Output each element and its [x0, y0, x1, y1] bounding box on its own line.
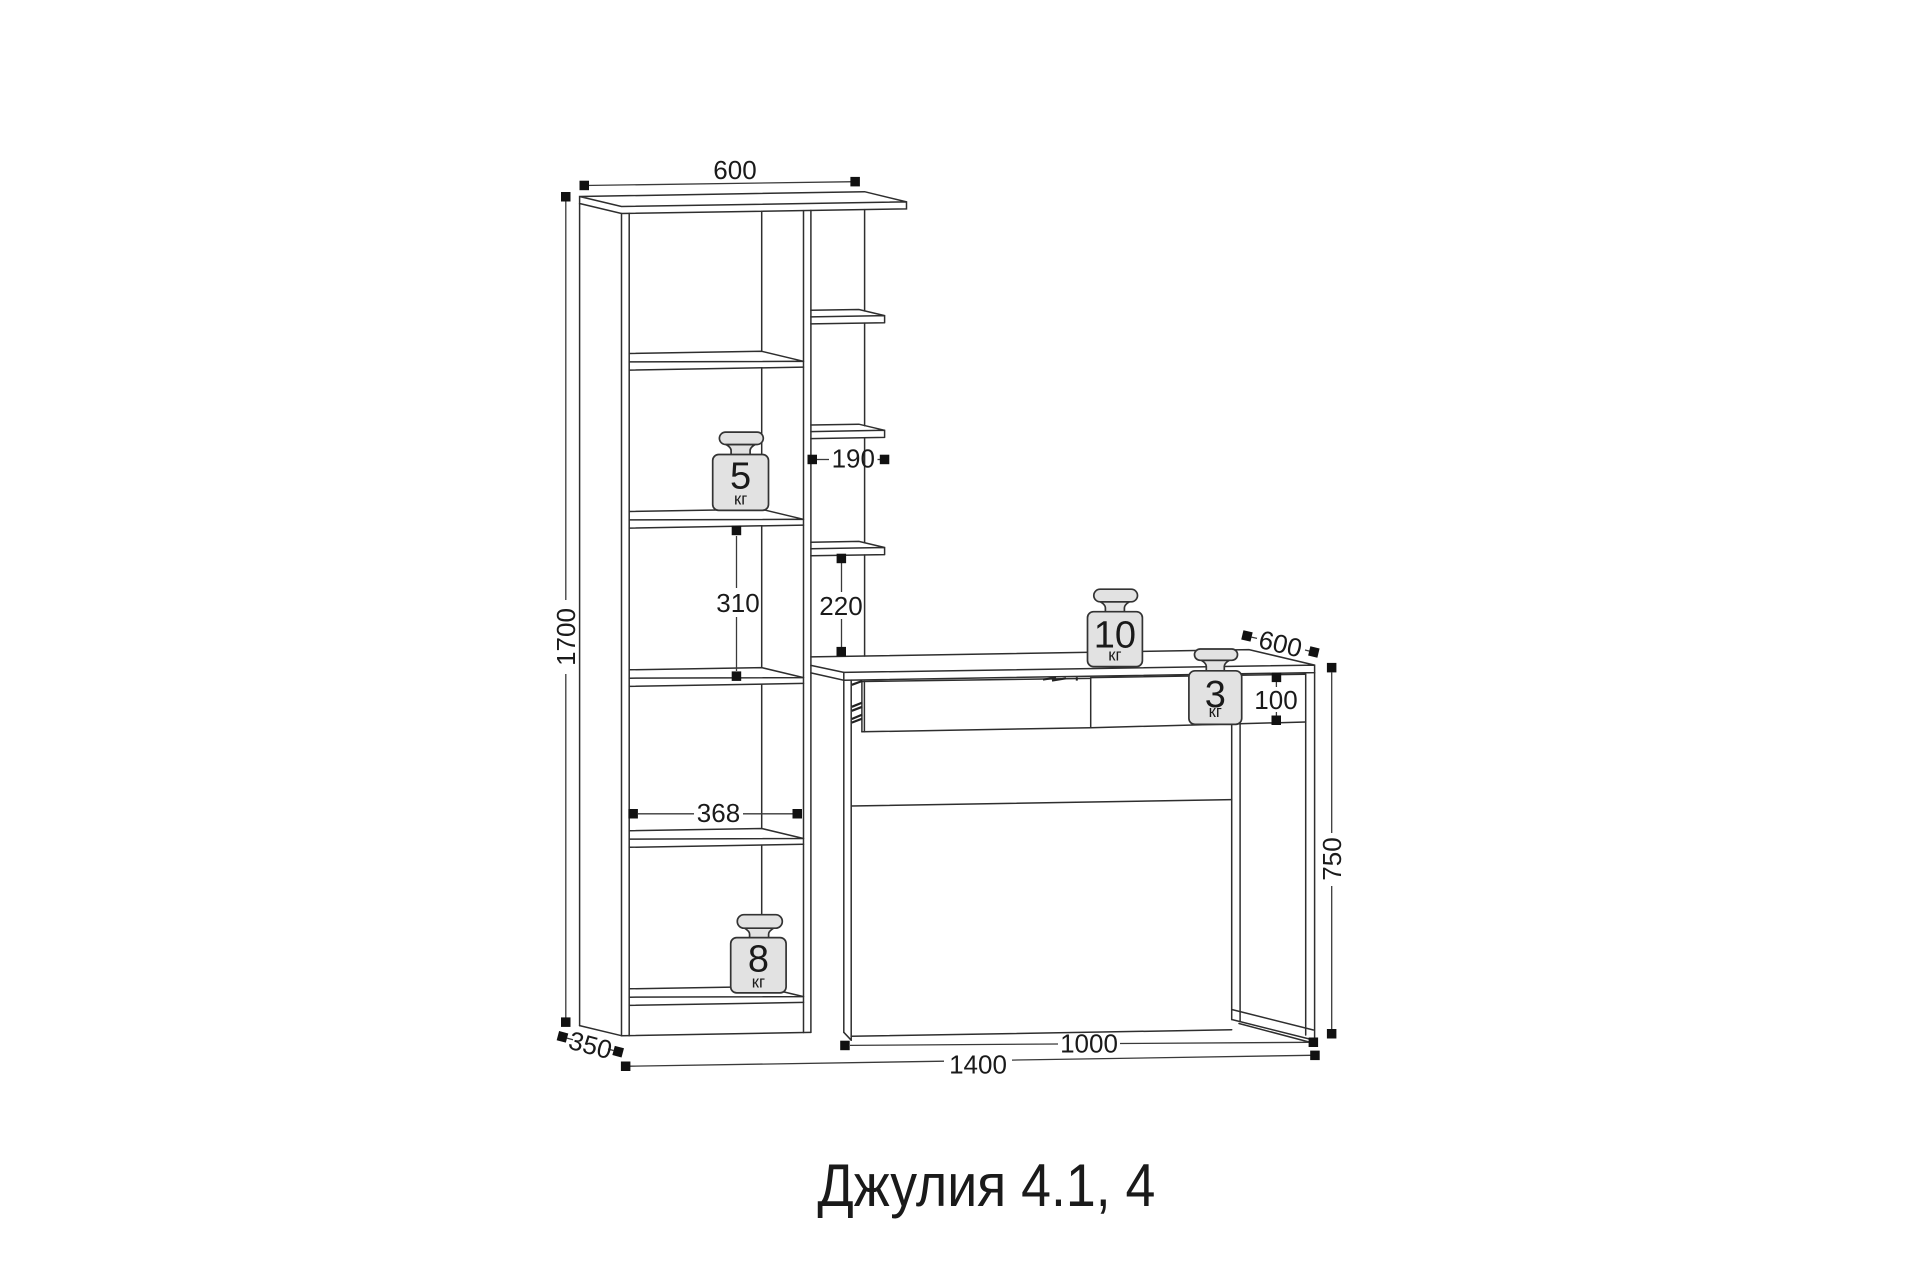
svg-text:368: 368 [697, 798, 740, 828]
svg-text:220: 220 [819, 591, 862, 621]
svg-text:кг: кг [752, 974, 765, 992]
svg-text:кг: кг [734, 491, 747, 509]
svg-text:750: 750 [1317, 837, 1347, 880]
svg-text:кг: кг [1108, 647, 1121, 665]
svg-text:1400: 1400 [949, 1049, 1007, 1079]
svg-text:1000: 1000 [1060, 1028, 1118, 1058]
svg-text:кг: кг [1209, 703, 1222, 721]
svg-text:Джулия 4.1, 4: Джулия 4.1, 4 [817, 1152, 1155, 1219]
svg-text:100: 100 [1254, 685, 1297, 715]
svg-text:310: 310 [716, 588, 759, 618]
svg-text:190: 190 [832, 444, 875, 474]
svg-text:600: 600 [713, 155, 756, 185]
svg-text:1700: 1700 [551, 608, 581, 666]
